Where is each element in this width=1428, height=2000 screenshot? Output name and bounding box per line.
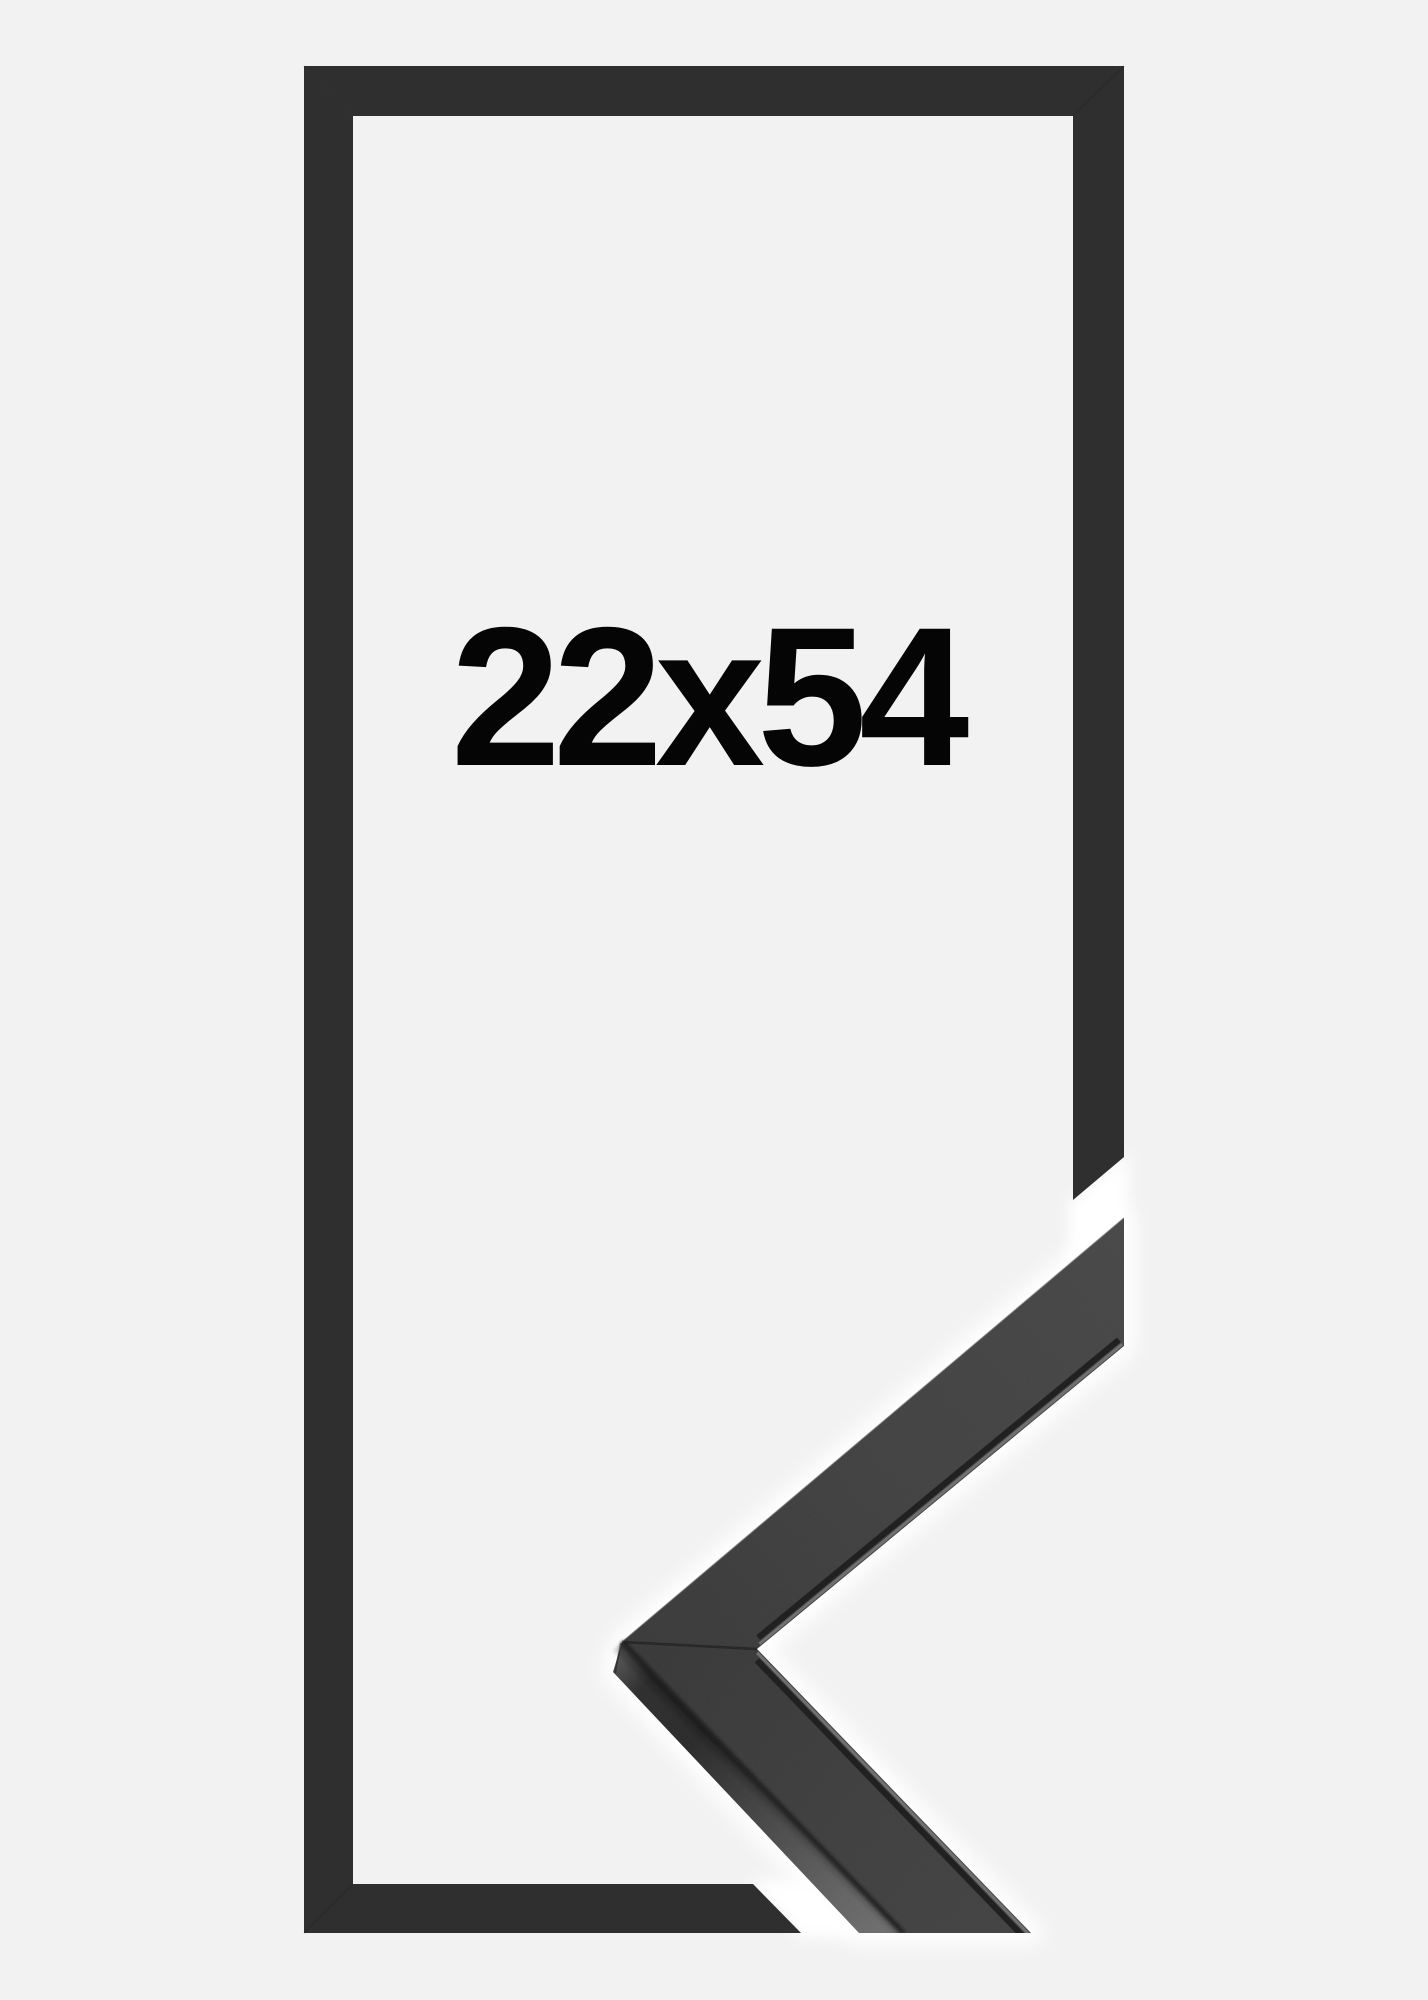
svg-text:22x54: 22x54 <box>451 586 969 807</box>
